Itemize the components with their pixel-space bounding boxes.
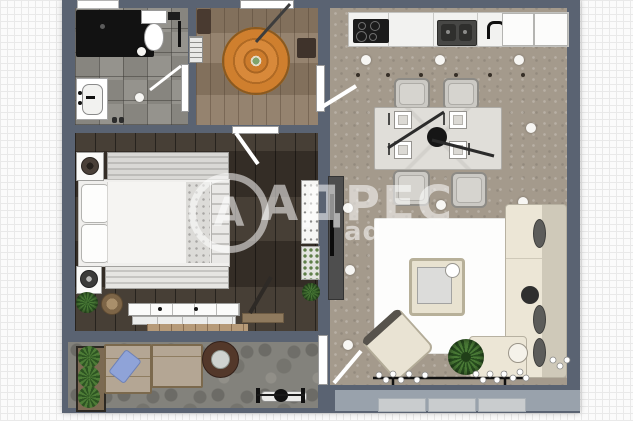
toilet-bowl bbox=[144, 23, 164, 51]
place-setting bbox=[394, 111, 412, 129]
track-light bbox=[386, 73, 390, 77]
sofa-pillow bbox=[533, 305, 546, 334]
sofa-cushion-round bbox=[508, 343, 528, 363]
ceiling-spotlight bbox=[137, 47, 146, 56]
place-setting bbox=[449, 141, 467, 159]
sink-drain bbox=[463, 30, 467, 34]
track-light bbox=[488, 73, 492, 77]
table-plate bbox=[211, 350, 230, 369]
burner bbox=[370, 21, 380, 31]
center-bowl bbox=[427, 127, 447, 147]
table-lamp bbox=[81, 157, 99, 175]
bed-runner bbox=[211, 182, 229, 263]
kitchen-sink bbox=[437, 20, 477, 46]
coffee-table bbox=[409, 258, 465, 316]
dining-chair bbox=[451, 172, 487, 208]
ledge-panel bbox=[378, 398, 426, 412]
ceiling-spotlight bbox=[343, 340, 353, 350]
cutlery bbox=[388, 143, 390, 155]
tap-handle bbox=[78, 91, 82, 95]
ceiling-spotlight bbox=[526, 123, 536, 133]
sink-drain bbox=[446, 30, 450, 34]
dining-chair bbox=[443, 78, 479, 110]
planter-plant bbox=[78, 386, 100, 408]
headboard-shelf bbox=[107, 152, 229, 181]
pillow bbox=[81, 184, 109, 223]
bathroom-door bbox=[181, 64, 189, 112]
bath-slippers bbox=[119, 117, 124, 123]
pillow bbox=[81, 224, 109, 263]
plant-stand bbox=[301, 246, 320, 280]
sink-basin bbox=[82, 84, 103, 115]
floor-plant bbox=[448, 339, 484, 375]
planter-plant bbox=[78, 366, 100, 388]
shoe-rack bbox=[189, 36, 203, 63]
track-light bbox=[356, 73, 360, 77]
burner bbox=[356, 31, 367, 42]
place-setting bbox=[394, 141, 412, 159]
coffee-table-tray bbox=[445, 263, 460, 278]
entry-door bbox=[240, 0, 294, 9]
entry-doormat bbox=[197, 9, 211, 34]
wicker-basket bbox=[101, 293, 123, 315]
duvet bbox=[107, 182, 186, 263]
toilet-cistern bbox=[141, 10, 167, 24]
tap-spout bbox=[86, 96, 95, 99]
hall-living-door bbox=[316, 65, 325, 112]
lounger bbox=[151, 344, 203, 388]
track-light bbox=[521, 73, 525, 77]
bedroom-door bbox=[232, 126, 279, 134]
cutlery bbox=[468, 143, 470, 155]
dining-chair bbox=[393, 170, 430, 206]
weight-plate bbox=[274, 389, 288, 402]
place-setting bbox=[449, 111, 467, 129]
dresser-knob bbox=[158, 307, 162, 311]
ceiling-spotlight bbox=[514, 55, 524, 65]
planter-plant bbox=[78, 346, 100, 368]
ceiling-spotlight bbox=[345, 265, 355, 275]
burner bbox=[358, 22, 366, 30]
weight-plate bbox=[256, 388, 260, 403]
track-light bbox=[419, 73, 423, 77]
tv-screen bbox=[330, 194, 334, 256]
ledge-panel bbox=[478, 398, 526, 412]
balcony-door bbox=[318, 335, 328, 385]
burner bbox=[369, 33, 377, 41]
floorplan-image: А АДРЕС ad bbox=[0, 0, 633, 421]
wardrobe bbox=[301, 180, 319, 244]
wood-threshold bbox=[147, 324, 248, 331]
ceiling-spotlight bbox=[343, 203, 353, 213]
ledge-panel bbox=[428, 398, 476, 412]
potted-plant bbox=[302, 283, 320, 301]
round-orange-rug bbox=[222, 27, 290, 95]
bed-throw bbox=[186, 182, 210, 263]
speaker bbox=[80, 270, 98, 288]
ceiling-spotlight bbox=[435, 55, 445, 65]
double-bed bbox=[78, 179, 230, 267]
kitchen-cabinet bbox=[534, 13, 568, 46]
hallway-mat bbox=[297, 38, 316, 58]
cutlery bbox=[388, 113, 390, 125]
sofa-pillow bbox=[533, 219, 546, 248]
weight-plate bbox=[301, 388, 305, 403]
shower-drain bbox=[100, 24, 105, 29]
balcony-round-table bbox=[202, 341, 239, 378]
balcony-planter bbox=[76, 346, 106, 412]
bath-slippers bbox=[112, 117, 117, 123]
dresser-knob bbox=[194, 307, 198, 311]
track-light bbox=[454, 73, 458, 77]
sofa-cushion-dark bbox=[521, 286, 539, 304]
ceiling-spotlight bbox=[135, 93, 144, 102]
bed-foot-rug bbox=[105, 266, 229, 289]
bathroom-window bbox=[77, 0, 119, 9]
tap-handle bbox=[78, 101, 82, 105]
side-board bbox=[242, 313, 284, 323]
ceiling-spotlight bbox=[436, 200, 446, 210]
low-dresser bbox=[128, 303, 240, 316]
bathroom-shelf bbox=[168, 12, 180, 20]
ceiling-spotlight bbox=[361, 55, 371, 65]
towel-rail bbox=[178, 21, 181, 47]
fridge bbox=[502, 13, 534, 46]
cutlery bbox=[443, 113, 445, 125]
potted-plant bbox=[76, 292, 98, 313]
dining-chair bbox=[394, 78, 430, 110]
sofa-pillow bbox=[533, 338, 546, 367]
